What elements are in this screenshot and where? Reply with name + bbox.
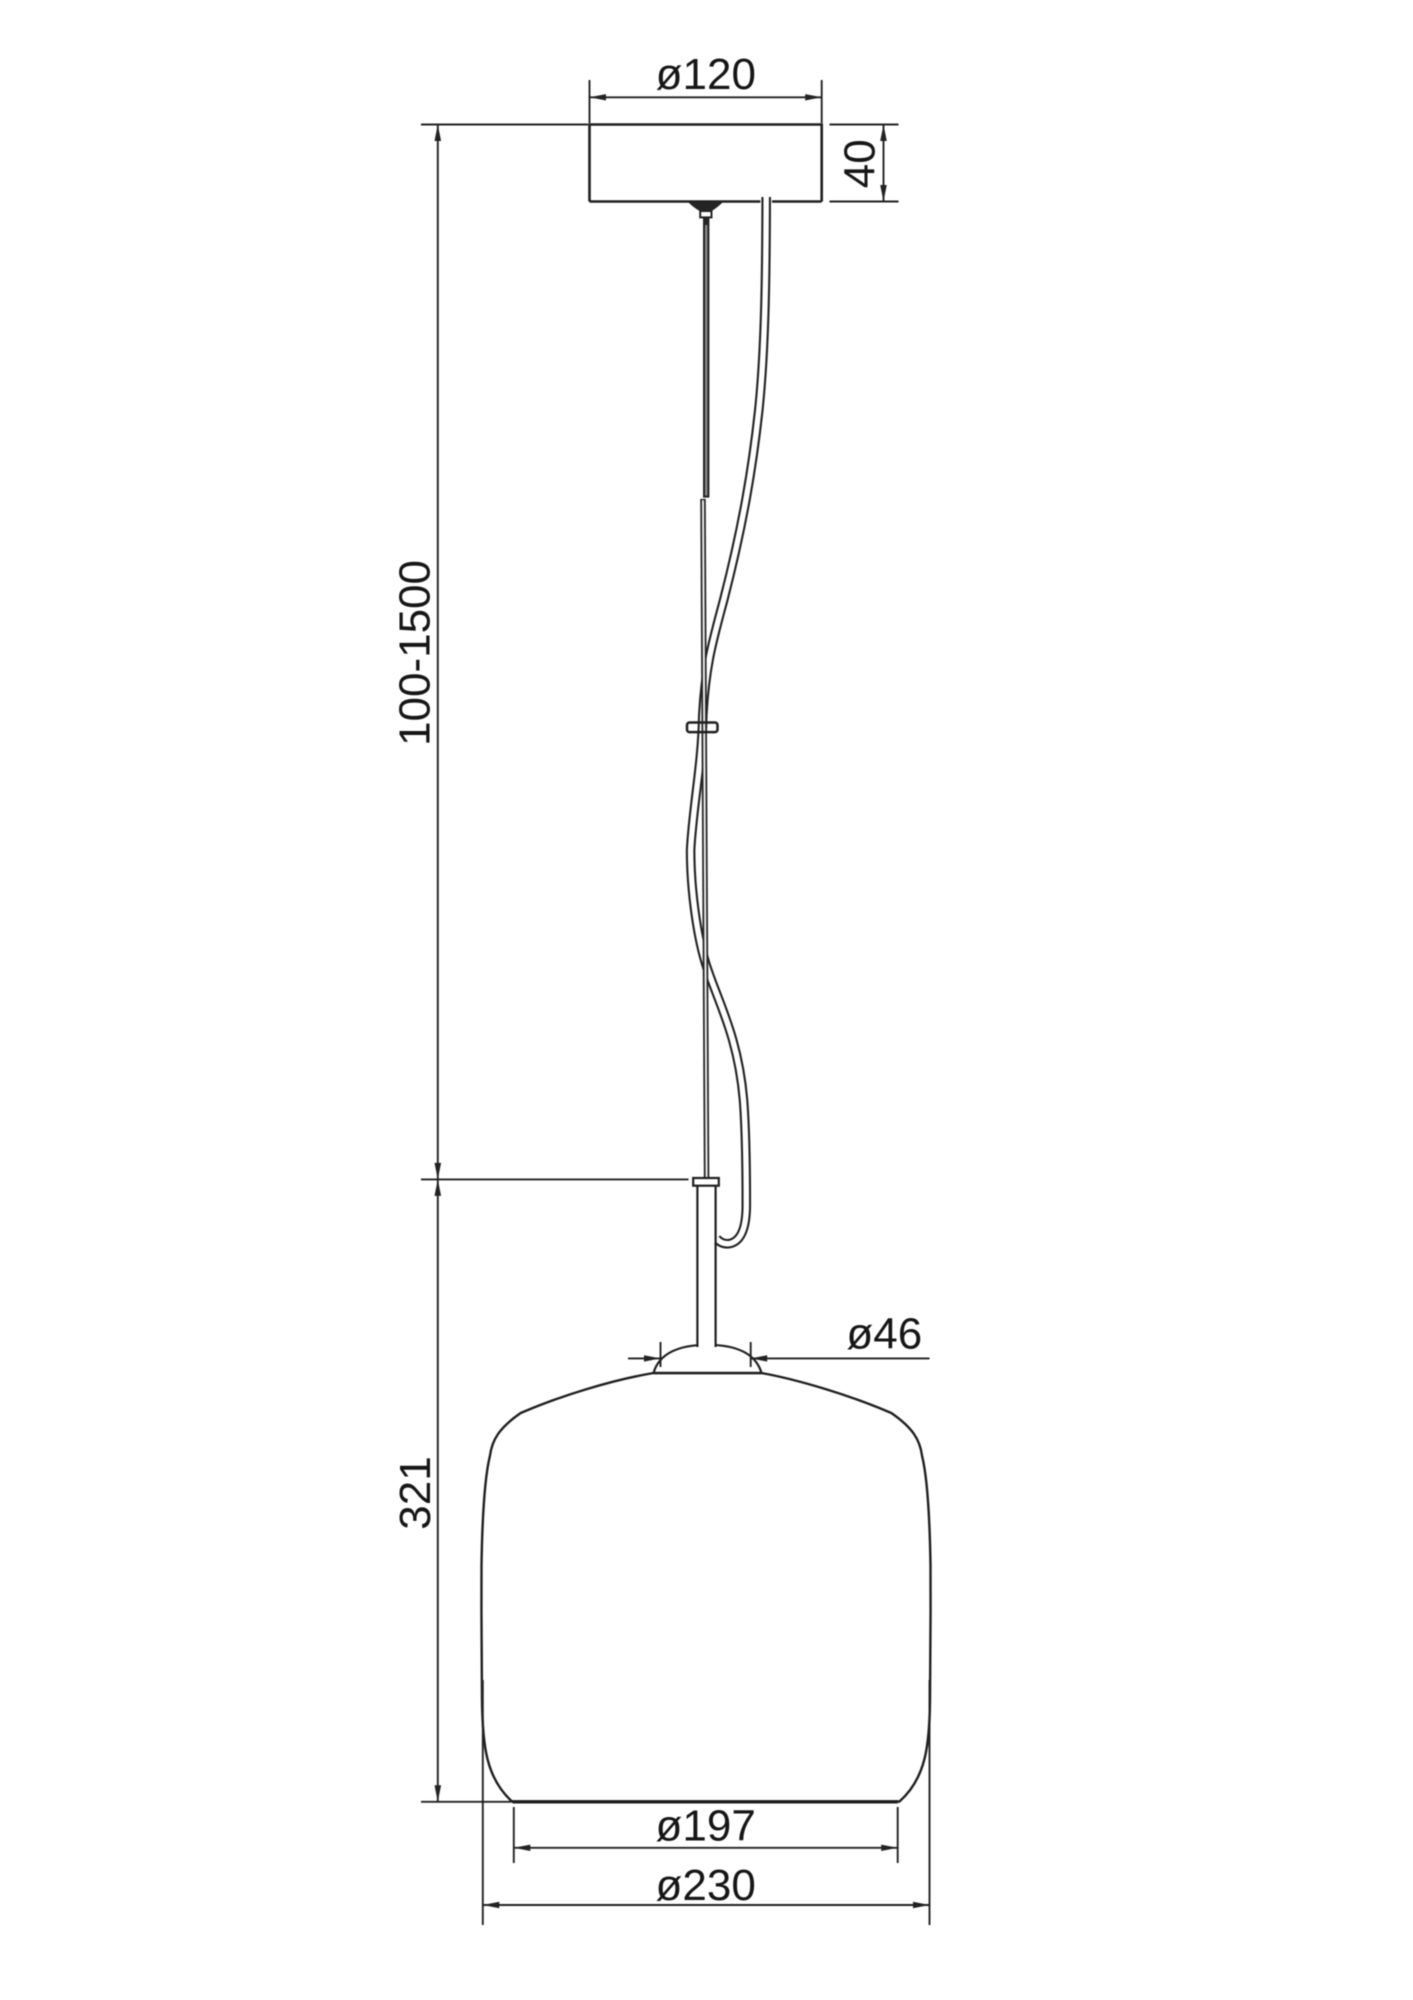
svg-text:40: 40 bbox=[836, 139, 885, 188]
svg-text:ø46: ø46 bbox=[846, 1310, 922, 1359]
svg-text:100-1500: 100-1500 bbox=[391, 560, 440, 746]
svg-text:ø120: ø120 bbox=[656, 50, 756, 99]
svg-text:321: 321 bbox=[391, 1456, 440, 1529]
svg-text:ø197: ø197 bbox=[656, 1802, 756, 1851]
svg-text:ø230: ø230 bbox=[656, 1861, 756, 1910]
